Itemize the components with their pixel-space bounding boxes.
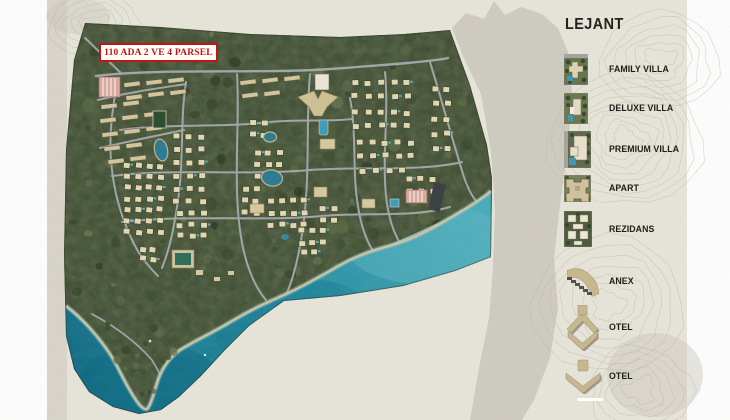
rezidans-block-west	[99, 77, 120, 97]
beach-club	[172, 250, 194, 268]
site-plan-canvas: 110 ADA 2 VE 4 PARSEL LEJANT FAMILY VILL…	[0, 0, 730, 420]
parcel-label: 110 ADA 2 VE 4 PARSEL	[99, 43, 218, 62]
rezidans-block-east	[406, 190, 427, 203]
site-plan-svg	[0, 0, 730, 420]
parcel-label-text: 110 ADA 2 VE 4 PARSEL	[104, 48, 213, 58]
